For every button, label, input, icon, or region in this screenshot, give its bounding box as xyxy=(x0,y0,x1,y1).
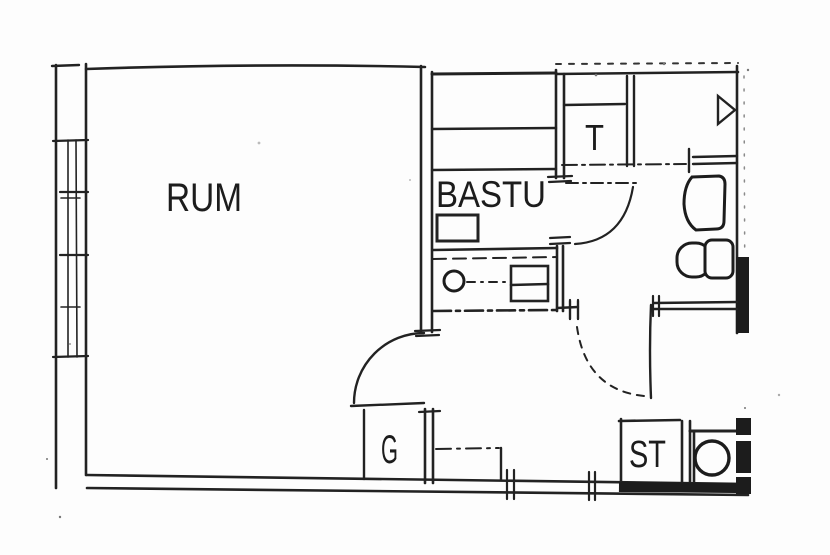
svg-text:T: T xyxy=(585,117,604,158)
svg-text:RUM: RUM xyxy=(166,176,242,220)
svg-text:G: G xyxy=(381,428,398,472)
svg-text:ST: ST xyxy=(629,434,666,476)
svg-text:BASTU: BASTU xyxy=(436,174,546,215)
